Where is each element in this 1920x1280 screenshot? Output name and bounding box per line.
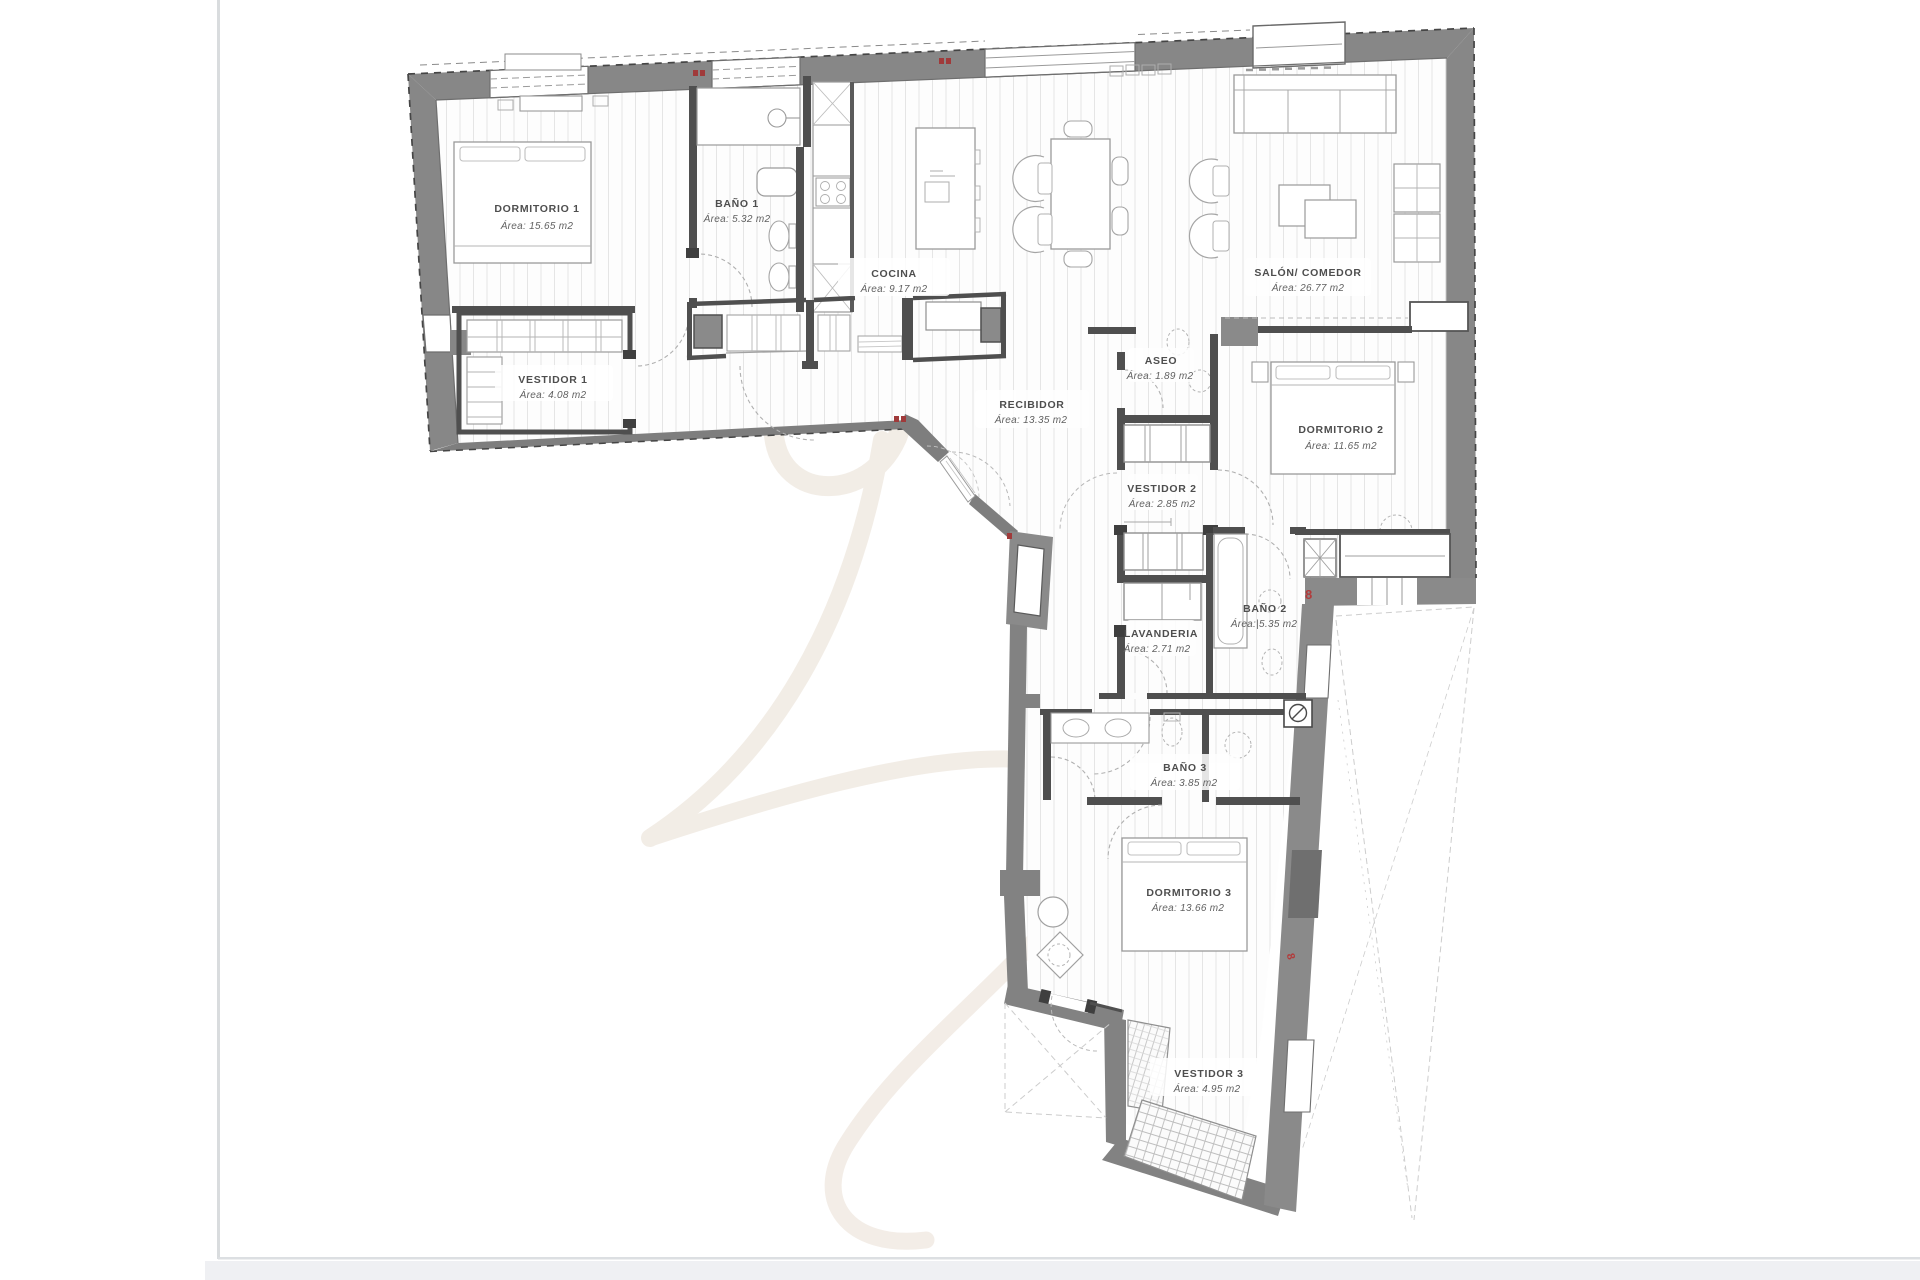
svg-text:VESTIDOR 1: VESTIDOR 1 (518, 374, 587, 386)
svg-text:Área: 13.35 m2: Área: 13.35 m2 (994, 413, 1068, 426)
svg-text:DORMITORIO 1: DORMITORIO 1 (494, 203, 579, 215)
svg-text:ASEO: ASEO (1145, 355, 1178, 367)
svg-text:DORMITORIO 3: DORMITORIO 3 (1146, 887, 1231, 899)
svg-text:Área: 15.65 m2: Área: 15.65 m2 (500, 219, 574, 232)
svg-text:Área: 1.89 m2: Área: 1.89 m2 (1126, 369, 1194, 382)
svg-text:Área:|5.35 m2: Área:|5.35 m2 (1230, 617, 1298, 630)
svg-text:Área: 3.85 m2: Área: 3.85 m2 (1150, 776, 1218, 789)
svg-text:Área: 9.17 m2: Área: 9.17 m2 (860, 282, 928, 295)
svg-text:Área: 5.32 m2: Área: 5.32 m2 (703, 212, 771, 225)
svg-text:Área: 4.95 m2: Área: 4.95 m2 (1173, 1082, 1241, 1095)
svg-text:LAVANDERIA: LAVANDERIA (1124, 628, 1198, 640)
svg-text:Área: 4.08 m2: Área: 4.08 m2 (519, 388, 587, 401)
svg-text:COCINA: COCINA (871, 268, 917, 280)
svg-text:BAÑO 3: BAÑO 3 (1163, 761, 1207, 774)
svg-text:DORMITORIO 2: DORMITORIO 2 (1298, 424, 1383, 436)
svg-text:Área: 13.66 m2: Área: 13.66 m2 (1151, 901, 1225, 914)
svg-text:BAÑO 1: BAÑO 1 (715, 197, 759, 210)
svg-text:VESTIDOR 2: VESTIDOR 2 (1127, 483, 1196, 495)
svg-text:BAÑO 2: BAÑO 2 (1243, 602, 1287, 615)
svg-text:Área: 2.71 m2: Área: 2.71 m2 (1123, 642, 1191, 655)
svg-text:Área: 26.77 m2: Área: 26.77 m2 (1271, 281, 1345, 294)
svg-text:Área: 11.65 m2: Área: 11.65 m2 (1304, 439, 1377, 452)
svg-text:8: 8 (1305, 587, 1312, 602)
svg-text:VESTIDOR 3: VESTIDOR 3 (1174, 1068, 1243, 1080)
svg-text:Área: 2.85 m2: Área: 2.85 m2 (1128, 497, 1196, 510)
svg-text:RECIBIDOR: RECIBIDOR (999, 399, 1064, 411)
svg-text:SALÓN/ COMEDOR: SALÓN/ COMEDOR (1254, 266, 1361, 279)
